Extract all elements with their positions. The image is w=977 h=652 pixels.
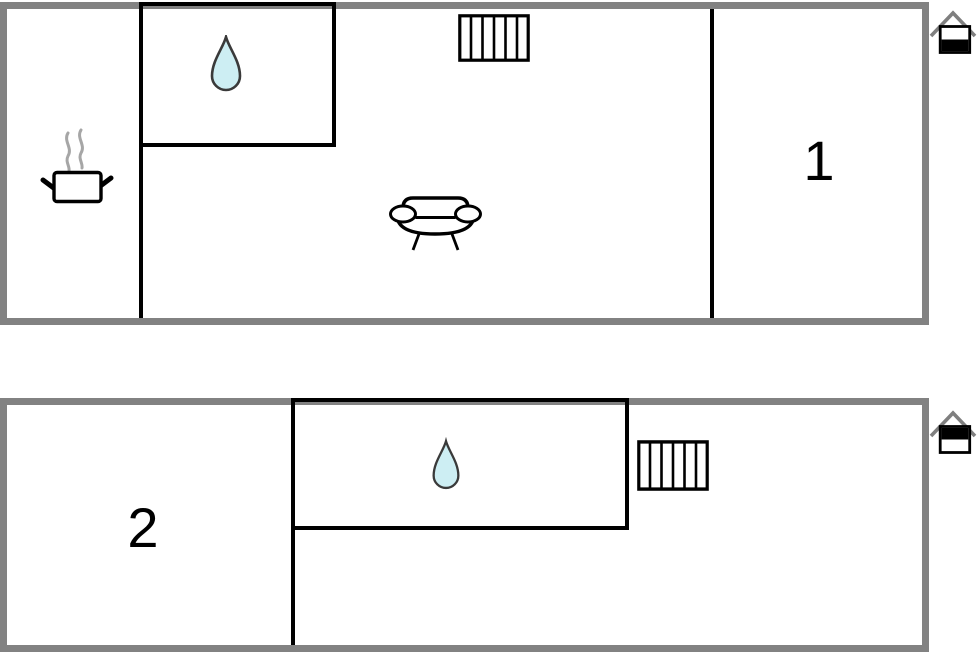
room-number-label: 1 bbox=[803, 133, 834, 189]
sofa-icon bbox=[388, 189, 483, 253]
steam-line bbox=[80, 130, 83, 168]
room-number-label: 2 bbox=[127, 500, 158, 556]
floor-plan-image: 1 2 bbox=[0, 0, 977, 652]
radiator-icon bbox=[637, 440, 709, 491]
house-upper-floor-icon bbox=[929, 409, 977, 457]
radiator-icon bbox=[458, 14, 530, 62]
steam-line bbox=[67, 133, 70, 171]
bedroom-wall bbox=[710, 9, 714, 318]
floor-1-plan: 1 bbox=[0, 2, 929, 325]
cooking-pot-icon bbox=[40, 128, 114, 207]
house-ground-floor-icon bbox=[929, 9, 977, 57]
water-drop-icon bbox=[431, 437, 461, 493]
floor-2-plan: 2 bbox=[0, 398, 929, 652]
water-drop-icon bbox=[209, 35, 243, 93]
